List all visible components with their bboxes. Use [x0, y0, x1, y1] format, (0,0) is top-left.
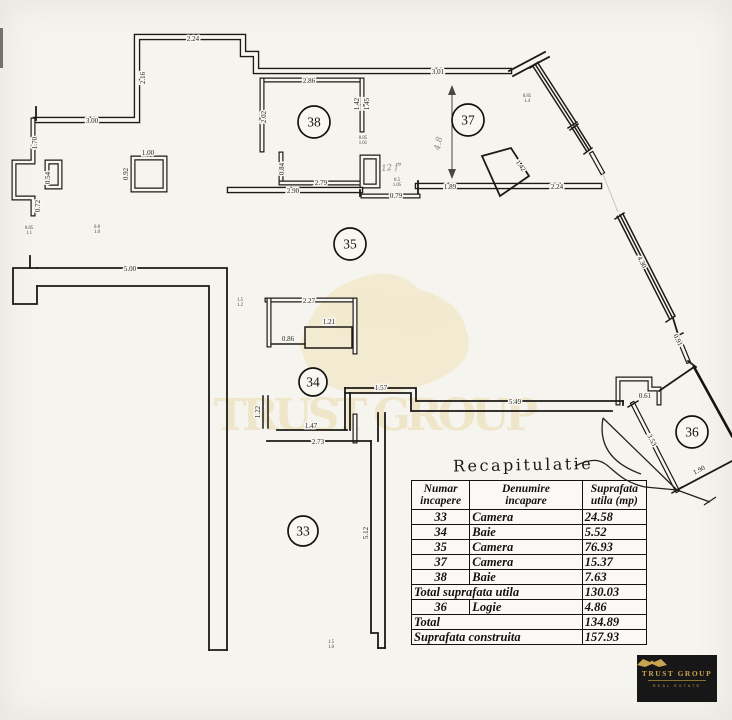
micro-dimension-mark: 0.851.01 [359, 136, 368, 146]
micro-dimension-mark: 0.851.4 [523, 94, 532, 104]
dimension-label: 2.27 [303, 297, 316, 305]
room-number: 35 [334, 228, 366, 260]
col-denumire: Denumire incapare [470, 481, 582, 510]
dimension-label: 1.89 [444, 183, 457, 191]
handshake-icon [637, 655, 667, 668]
recap-block: Recapitulatie Numar incapere Denumire in… [411, 455, 647, 645]
dimension-label: 0.84 [278, 162, 286, 175]
room-number: 38 [298, 106, 330, 138]
logo-brand-text: TRUST GROUP [642, 669, 712, 678]
pencil-note: 4.8 [433, 135, 446, 152]
dimension-label: 1.57 [375, 384, 388, 392]
dimension-label: 2.16 [139, 71, 147, 84]
room-number-text: 36 [685, 425, 699, 440]
dimension-label: 2.02 [260, 110, 268, 123]
room-number: 33 [288, 516, 318, 546]
dimension-arrow [448, 85, 456, 179]
trust-group-logo: TRUST GROUP REAL ESTATE [637, 655, 717, 702]
dimension-label: 1.45 [363, 97, 371, 110]
micro-dimension-mark: 0.851.1 [25, 226, 34, 236]
dimension-label: 2.86 [303, 77, 316, 85]
pencil-notes: 12 f°4.8 [381, 135, 446, 174]
table-row: 35 Camera 76.93 [412, 540, 647, 555]
table-total-row: Total 134.89 [412, 615, 647, 630]
table-row: 38 Baie 7.63 [412, 570, 647, 585]
table-header-row: Numar incapere Denumire incapare Suprafa… [412, 481, 647, 510]
room-number: 34 [299, 368, 327, 396]
table-total-utila-row: Total suprafata utila 130.03 [412, 585, 647, 600]
micro-dimension-mark: 1.51.0 [328, 640, 335, 650]
room-number-text: 38 [307, 115, 321, 130]
dimension-label: 3.01 [432, 68, 445, 76]
dimension-label: 0.79 [390, 192, 403, 200]
dimension-label: 3.00 [86, 117, 99, 125]
room-number-text: 37 [461, 113, 475, 128]
table-construita-row: Suprafata construita 157.93 [412, 630, 647, 645]
dimension-label: 1.21 [323, 318, 336, 326]
dimension-label: 0.72 [34, 199, 42, 212]
pencil-note: 12 f° [381, 162, 403, 174]
table-logie-row: 36 Logie 4.86 [412, 600, 647, 615]
dimension-label: 5.00 [124, 265, 137, 273]
dimension-label: 2.73 [312, 438, 325, 446]
table-row: 37 Camera 15.37 [412, 555, 647, 570]
micro-dimension-mark: 1.51.2 [237, 298, 244, 308]
dimension-label: 0.86 [282, 335, 295, 343]
scan-edge-artifact [0, 28, 3, 68]
dimension-label: 2.24 [187, 35, 200, 43]
room-number: 37 [452, 104, 484, 136]
dimension-label: 1.42 [353, 97, 361, 110]
room-number-text: 35 [343, 237, 357, 252]
dimension-label: 2.90 [287, 187, 300, 195]
dimension-label: 0.92 [122, 167, 130, 180]
dimension-label: 5.49 [509, 398, 522, 406]
room-number-text: 33 [296, 524, 310, 539]
dimension-label: 5.12 [362, 526, 370, 539]
table-row: 33 Camera 24.58 [412, 510, 647, 525]
dimension-label: 1.70 [31, 136, 39, 149]
dimension-label: 1.00 [142, 149, 155, 157]
dimension-label: 0.54 [44, 171, 52, 184]
room-number-text: 34 [306, 375, 320, 390]
dimension-label: 0.61 [639, 392, 652, 400]
dimension-label: 2.79 [315, 179, 328, 187]
dimension-label: 2.24 [551, 183, 564, 191]
micro-dimension-mark: 0.81.0 [94, 225, 101, 235]
recap-title: Recapitulatie [453, 454, 623, 476]
table-row: 34 Baie 5.52 [412, 525, 647, 540]
room-number: 36 [676, 416, 708, 448]
col-numar: Numar incapere [412, 481, 470, 510]
logo-tagline: REAL ESTATE [653, 683, 701, 688]
dimension-label: 1.22 [254, 405, 262, 418]
micro-dimension-mark: 0.51.05 [393, 178, 402, 188]
recap-table: Numar incapere Denumire incapare Suprafa… [411, 480, 647, 645]
floorplan-scan-page: TRUST GROUP [0, 0, 732, 720]
dimension-label: 1.47 [305, 422, 318, 430]
logo-divider [648, 680, 706, 681]
col-suprafata: Suprafata utila (mp) [582, 481, 646, 510]
